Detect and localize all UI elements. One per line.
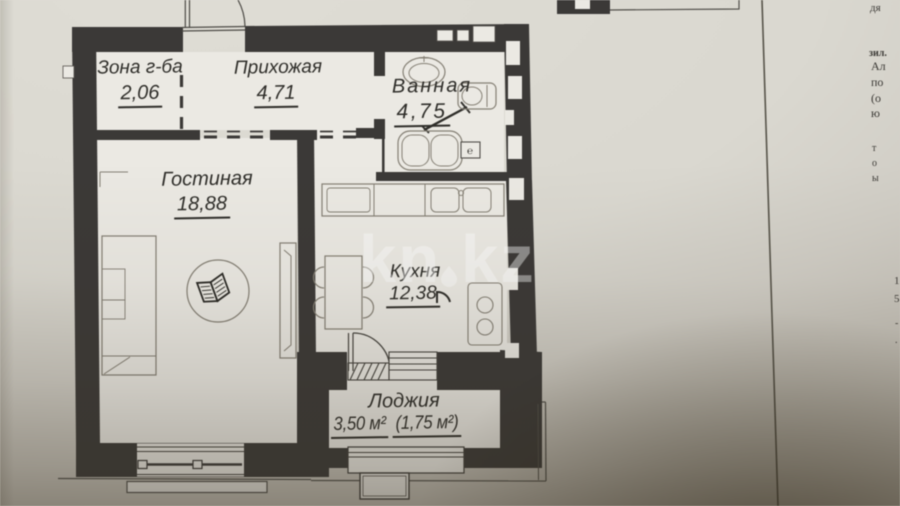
svg-text:kn: kn: [359, 222, 441, 297]
svg-text:kz: kz: [461, 222, 536, 297]
